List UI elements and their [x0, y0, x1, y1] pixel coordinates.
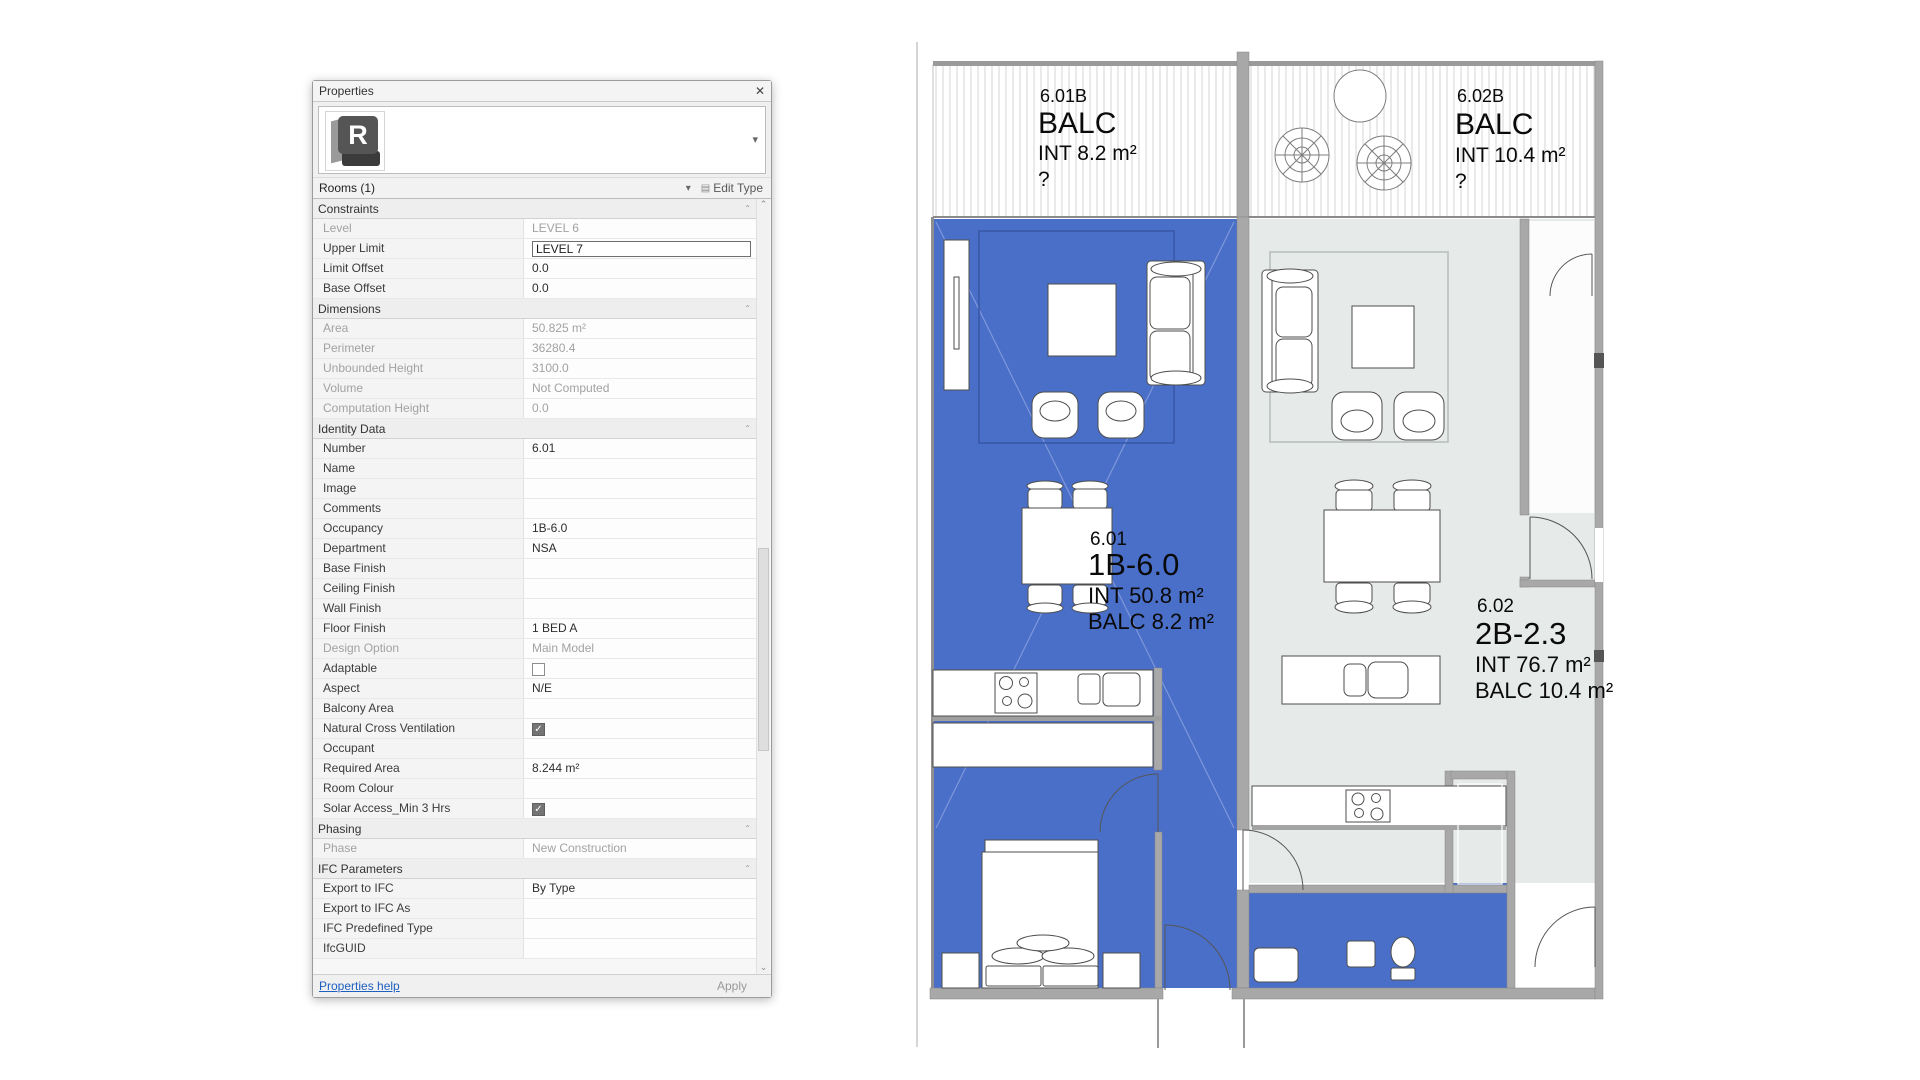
floor-plan-view: 6.01B BALC INT 8.2 m² ? 6.02B BALC INT 1… [900, 40, 1640, 1065]
property-row: VolumeNot Computed [313, 379, 757, 399]
edit-type-label: Edit Type [713, 181, 763, 195]
wicker-chair [1357, 136, 1411, 190]
property-row: AspectN/E [313, 679, 757, 699]
property-row: IFC Predefined Type [313, 919, 757, 939]
svg-text:6.01B: 6.01B [1040, 86, 1087, 106]
property-row: PhaseNew Construction [313, 839, 757, 859]
edit-type-button[interactable]: ▤ Edit Type [697, 181, 767, 195]
property-row: Wall Finish [313, 599, 757, 619]
chevron-down-icon: ▾ [686, 183, 691, 194]
checkbox[interactable] [532, 723, 545, 736]
property-row: Export to IFC As [313, 899, 757, 919]
rooms-combobox[interactable]: Rooms (1) ▾ [313, 181, 697, 195]
property-row: Occupancy1B-6.0 [313, 519, 757, 539]
property-row: Room Colour [313, 779, 757, 799]
coffee-table [1352, 306, 1414, 368]
property-row: Solar Access_Min 3 Hrs [313, 799, 757, 819]
property-row: IfcGUID [313, 939, 757, 959]
section-header[interactable]: Dimensions⌃ [313, 299, 757, 319]
tub-chair [1394, 392, 1444, 440]
property-row: Base Finish [313, 559, 757, 579]
rooms-combobox-label: Rooms (1) [319, 181, 375, 195]
property-row: Unbounded Height3100.0 [313, 359, 757, 379]
nightstand [1103, 953, 1140, 988]
svg-text:?: ? [1038, 168, 1050, 191]
svg-text:INT 50.8 m²: INT 50.8 m² [1088, 583, 1204, 608]
svg-text:6.02: 6.02 [1477, 596, 1514, 617]
type-selector[interactable]: R ▾ [318, 106, 766, 174]
scrollbar-thumb[interactable] [758, 548, 769, 752]
tv-unit [944, 240, 969, 390]
properties-help-link[interactable]: Properties help [319, 979, 400, 993]
svg-text:INT 10.4 m²: INT 10.4 m² [1455, 144, 1565, 167]
property-row: Upper LimitLEVEL 7 [313, 239, 757, 259]
balcony-table [1334, 70, 1386, 122]
scroll-up-icon[interactable]: ⌃ [757, 199, 770, 211]
property-row: Natural Cross Ventilation [313, 719, 757, 739]
section-header[interactable]: Constraints⌃ [313, 199, 757, 219]
property-row: Balcony Area [313, 699, 757, 719]
property-row: Computation Height0.0 [313, 399, 757, 419]
property-row: Area50.825 m² [313, 319, 757, 339]
kitchen-island [933, 723, 1153, 767]
property-row: Name [313, 459, 757, 479]
filter-row: Rooms (1) ▾ ▤ Edit Type [313, 177, 771, 199]
coffee-table [1048, 284, 1116, 356]
balcony-band [933, 61, 1595, 221]
svg-text:BALC 10.4 m²: BALC 10.4 m² [1475, 678, 1613, 703]
panel-footer: Properties help Apply [313, 974, 771, 997]
tub-chair [1332, 392, 1382, 440]
property-row: Floor Finish1 BED A [313, 619, 757, 639]
svg-text:INT 8.2 m²: INT 8.2 m² [1038, 142, 1137, 165]
toilet [1391, 937, 1415, 980]
property-row: LevelLEVEL 6 [313, 219, 757, 239]
property-row: DepartmentNSA [313, 539, 757, 559]
basin [1347, 941, 1375, 967]
svg-text:BALC: BALC [1038, 107, 1116, 140]
close-icon[interactable]: ✕ [755, 85, 765, 97]
bed [982, 840, 1098, 988]
edit-type-icon: ▤ [701, 183, 710, 194]
property-row: Number6.01 [313, 439, 757, 459]
property-grid: Constraints⌃ LevelLEVEL 6 Upper LimitLEV… [313, 199, 771, 974]
property-row: Ceiling Finish [313, 579, 757, 599]
sofa [1262, 269, 1318, 393]
chevron-down-icon[interactable]: ▾ [752, 133, 758, 146]
kitchen-island [1282, 656, 1440, 704]
checkbox[interactable] [532, 803, 545, 816]
revit-logo-icon: R [325, 111, 385, 171]
svg-text:2B-2.3: 2B-2.3 [1475, 616, 1566, 651]
property-row: Base Offset0.0 [313, 279, 757, 299]
apply-button[interactable]: Apply [703, 978, 761, 994]
property-row: Comments [313, 499, 757, 519]
scroll-down-icon[interactable]: ⌄ [757, 962, 770, 974]
tub-chair [1032, 392, 1078, 438]
property-row: Required Area8.244 m² [313, 759, 757, 779]
kitchen-counter [933, 670, 1153, 716]
nightstand [942, 953, 979, 988]
svg-text:BALC: BALC [1455, 108, 1533, 141]
upper-limit-input[interactable]: LEVEL 7 [532, 241, 751, 257]
panel-title: Properties [319, 84, 374, 98]
section-header[interactable]: Phasing⌃ [313, 819, 757, 839]
properties-panel: Properties ✕ R ▾ Rooms (1) ▾ ▤ Edit Type… [312, 80, 772, 998]
wicker-chair [1275, 128, 1329, 182]
floor-plan-svg: 6.01B BALC INT 8.2 m² ? 6.02B BALC INT 1… [900, 40, 1640, 1060]
svg-text:BALC 8.2 m²: BALC 8.2 m² [1088, 609, 1214, 634]
tub-chair [1098, 392, 1144, 438]
property-row: Perimeter36280.4 [313, 339, 757, 359]
grid-stubs [1158, 999, 1244, 1048]
svg-text:?: ? [1455, 170, 1467, 193]
property-row: Image [313, 479, 757, 499]
washbasin [1254, 948, 1298, 982]
property-row: Export to IFCBy Type [313, 879, 757, 899]
svg-text:INT 76.7 m²: INT 76.7 m² [1475, 652, 1591, 677]
property-row: Adaptable [313, 659, 757, 679]
scrollbar[interactable]: ⌃ ⌄ [756, 199, 770, 974]
section-header[interactable]: IFC Parameters⌃ [313, 859, 757, 879]
section-header[interactable]: Identity Data⌃ [313, 419, 757, 439]
property-row: Design OptionMain Model [313, 639, 757, 659]
kitchen-counter [1252, 786, 1506, 830]
property-row: Occupant [313, 739, 757, 759]
property-row: Limit Offset0.0 [313, 259, 757, 279]
svg-text:6.02B: 6.02B [1457, 86, 1504, 106]
panel-titlebar[interactable]: Properties ✕ [313, 81, 771, 102]
checkbox[interactable] [532, 663, 545, 676]
svg-text:1B-6.0: 1B-6.0 [1088, 547, 1179, 582]
sofa [1147, 261, 1205, 385]
